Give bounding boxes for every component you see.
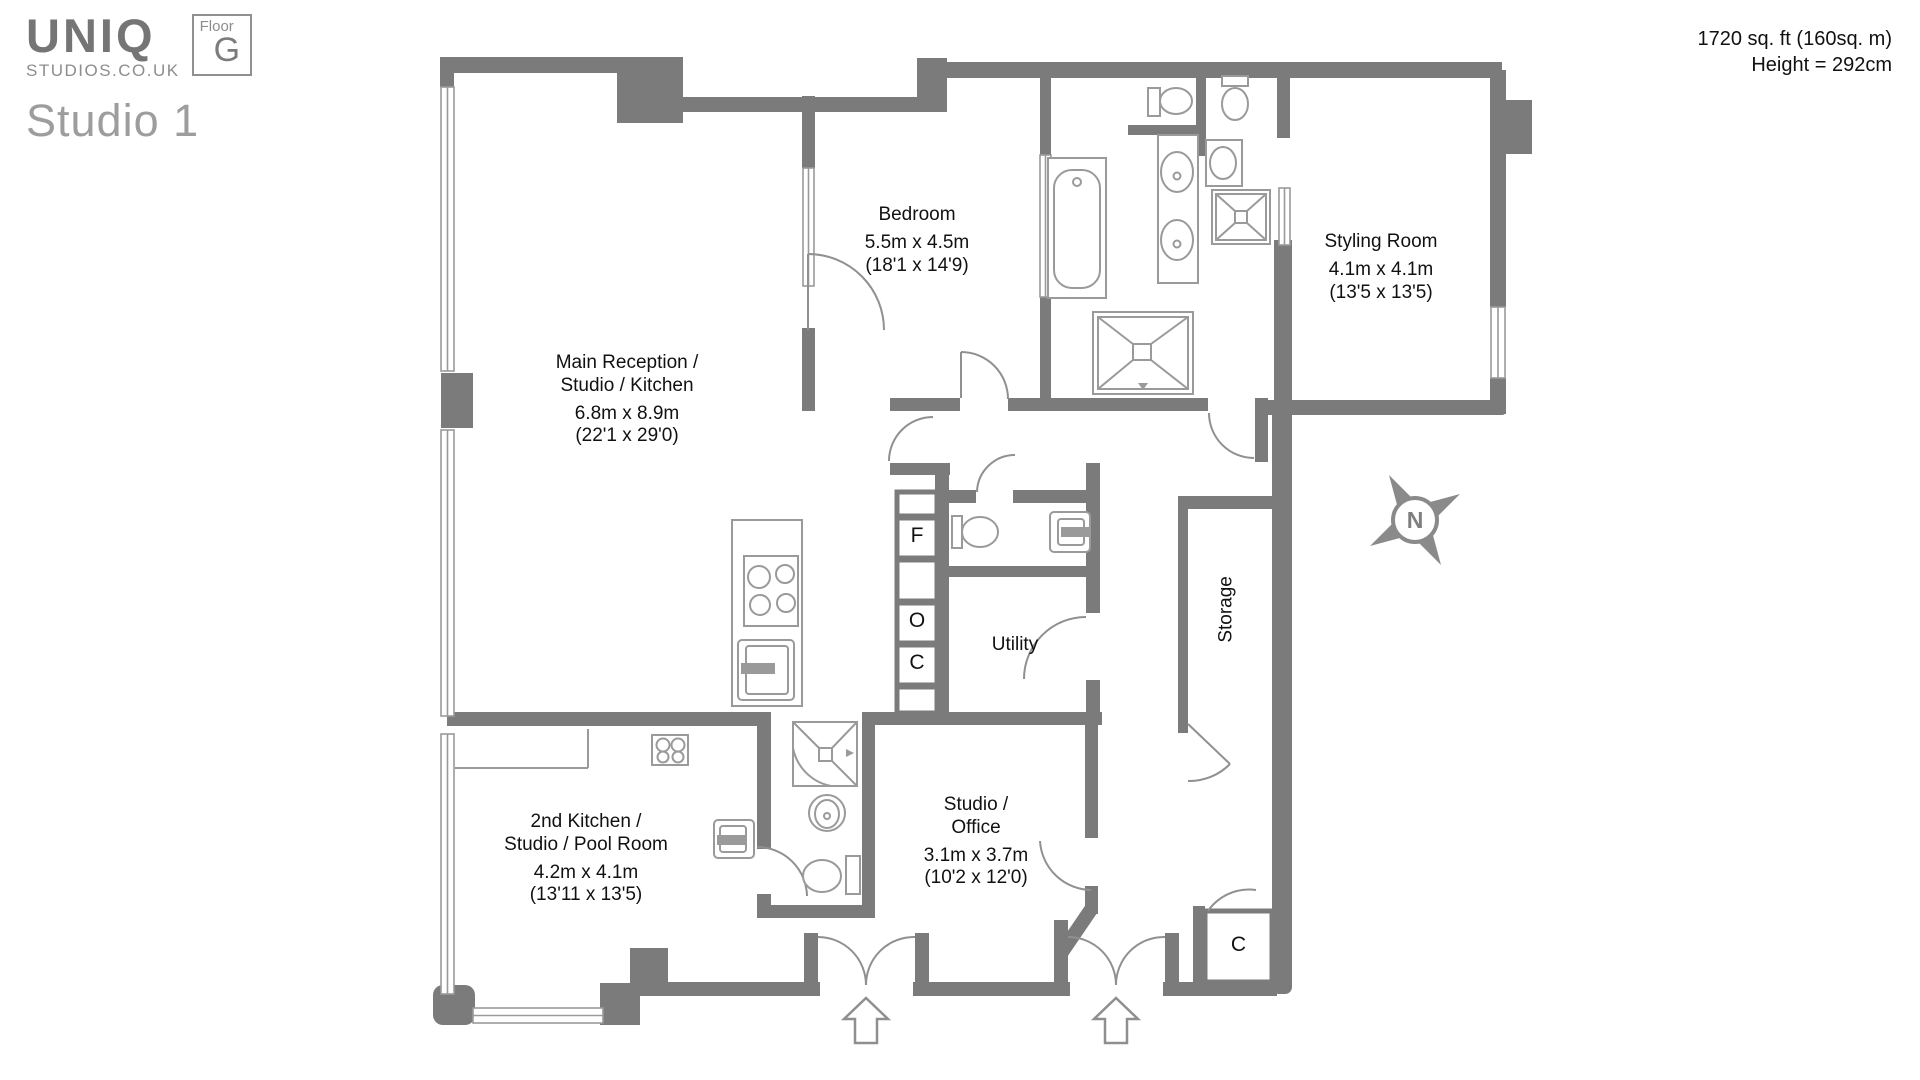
fridge-letter: F — [897, 524, 937, 548]
corner-shower-icon — [793, 722, 857, 786]
area-text: 1720 sq. ft (160sq. m) — [1697, 26, 1892, 52]
room-name: Studio / — [826, 794, 1126, 817]
room-name: Storage — [1216, 549, 1239, 669]
room-dim-metric: 6.8m x 8.9m — [477, 403, 777, 426]
room-dim-imperial: (10'2 x 12'0) — [826, 867, 1126, 890]
entry-arrow-icon — [1094, 998, 1138, 1043]
kitchen-island-icon — [732, 520, 802, 706]
brand-domain: STUDIOS.CO.UK — [26, 61, 180, 81]
studio-title: Studio 1 — [26, 95, 252, 147]
room-name: Studio / Kitchen — [477, 375, 777, 398]
height-text: Height = 292cm — [1697, 52, 1892, 78]
double-basin-icon — [1158, 135, 1198, 283]
toilet-icon — [1148, 88, 1192, 116]
room-dim-metric: 5.5m x 4.5m — [767, 232, 1067, 255]
room-dim-metric: 3.1m x 3.7m — [826, 845, 1126, 868]
room-dim-imperial: (13'11 x 13'5) — [436, 884, 736, 907]
room-name: Styling Room — [1231, 231, 1531, 254]
room-label-main-reception: Main Reception / Studio / Kitchen 6.8m x… — [477, 352, 777, 448]
room-dim-metric: 4.2m x 4.1m — [436, 862, 736, 885]
room-name: 2nd Kitchen / — [436, 811, 736, 834]
shower-icon — [1093, 312, 1193, 394]
room-name: Utility — [940, 634, 1090, 657]
counter-line — [455, 729, 588, 768]
room-label-studio-office: Studio / Office 3.1m x 3.7m (10'2 x 12'0… — [826, 794, 1126, 890]
floor-value: G — [214, 35, 250, 66]
room-name: Studio / Pool Room — [436, 834, 736, 857]
compass-north-letter: N — [1393, 507, 1437, 534]
entry-arrow-icon — [844, 998, 888, 1043]
hob-icon — [652, 735, 688, 765]
entrance-arrows — [844, 998, 1138, 1043]
room-name: Main Reception / — [477, 352, 777, 375]
room-label-storage: Storage — [1216, 549, 1239, 669]
closet-letter: C — [1205, 933, 1272, 957]
toilet-icon — [952, 516, 998, 548]
room-label-second-kitchen: 2nd Kitchen / Studio / Pool Room 4.2m x … — [436, 811, 736, 907]
brand-logo: UNIQ — [26, 14, 180, 59]
floor-badge: Floor G — [192, 14, 252, 76]
basin-icon — [1206, 140, 1242, 186]
plan-summary: 1720 sq. ft (160sq. m) Height = 292cm — [1697, 26, 1892, 78]
room-dim-imperial: (22'1 x 29'0) — [477, 425, 777, 448]
toilet-icon — [1222, 76, 1248, 120]
room-dim-metric: 4.1m x 4.1m — [1231, 259, 1531, 282]
floorplan-page: UNIQ STUDIOS.CO.UK Floor G Studio 1 1720… — [0, 0, 1920, 1080]
room-dim-imperial: (13'5 x 13'5) — [1231, 282, 1531, 305]
room-label-utility: Utility — [940, 634, 1090, 657]
room-label-bedroom: Bedroom 5.5m x 4.5m (18'1 x 14'9) — [767, 204, 1067, 277]
room-label-styling-room: Styling Room 4.1m x 4.1m (13'5 x 13'5) — [1231, 231, 1531, 304]
floorplan-drawing — [0, 0, 1920, 1080]
room-name: Office — [826, 817, 1126, 840]
oven-letter: O — [897, 609, 937, 633]
room-dim-imperial: (18'1 x 14'9) — [767, 255, 1067, 278]
cupboard-letter: C — [897, 651, 937, 675]
sink-icon — [1050, 512, 1090, 552]
room-name: Bedroom — [767, 204, 1067, 227]
logo-block: UNIQ STUDIOS.CO.UK Floor G Studio 1 — [26, 14, 252, 147]
